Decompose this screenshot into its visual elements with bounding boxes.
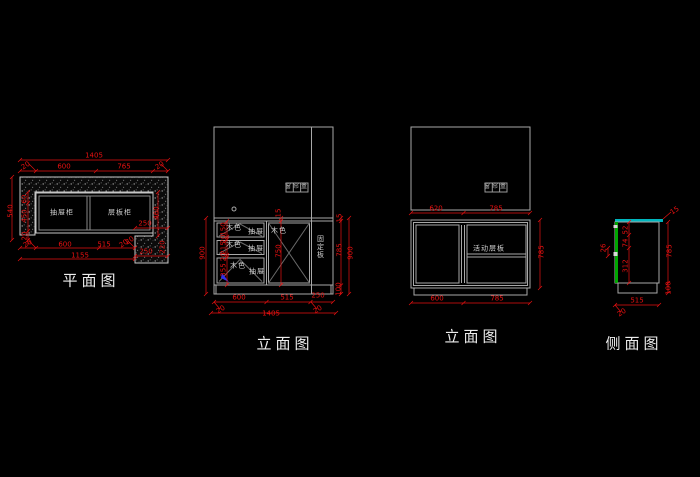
- elev1-dim-right-100: 100: [336, 282, 343, 295]
- drawing-canvas: [0, 0, 700, 477]
- elev1-dim-bot-515: 515: [280, 295, 293, 302]
- plan-label-drawer-cabinet: 抽屉柜: [50, 210, 74, 217]
- plan-dim-bot-600: 600: [58, 242, 71, 249]
- elev1-dim-355: 355: [221, 263, 228, 276]
- elev2-label-movable-shelf: 活动层板: [473, 246, 505, 253]
- elev1-label-drawer-1: 抽屉: [248, 229, 264, 236]
- elev2-dim-bot-785: 785: [490, 296, 503, 303]
- side-dim-base-100: 100: [666, 281, 673, 294]
- elev2-label-curtain-box: 窗帘盒: [484, 184, 508, 190]
- elev1-view-title: 立面图: [256, 337, 313, 352]
- elev1-label-curtain-box: 窗帘盒: [285, 184, 309, 190]
- plan-dim-600-top: 600: [57, 164, 70, 171]
- plan-dim-bot-515: 515: [97, 242, 110, 249]
- elev1-label-fixed-panel: 固定板: [317, 235, 324, 259]
- elev1-dim-bot-250: 250: [311, 293, 324, 300]
- elev1-dim-right-785: 785: [337, 243, 344, 256]
- plan-dim-bot-total: 1155: [71, 253, 89, 260]
- side-dim-312: 312: [623, 259, 630, 272]
- side-dim-left-26: 26: [601, 244, 608, 253]
- side-dim-right-785: 785: [667, 244, 674, 257]
- elev2-dim-right-785: 785: [539, 245, 546, 258]
- elev1-label-wood-1: 木色: [226, 225, 242, 232]
- plan-view-title: 平面图: [62, 274, 119, 289]
- plan-dim-right-460: 460: [154, 206, 161, 219]
- elev1-dim-bot-total: 1405: [262, 311, 280, 318]
- elev1-label-drawer-3: 抽屉: [249, 269, 265, 276]
- elev1-label-wood-3: 木色: [230, 263, 246, 270]
- plan-dim-left-450: 450: [22, 209, 29, 222]
- plan-dim-total-width: 1405: [85, 153, 103, 160]
- elev2-dim-top-620: 620: [429, 206, 442, 213]
- elev1-dim-900-right: 900: [348, 246, 355, 259]
- side-dim-bot-515: 515: [630, 298, 643, 305]
- elev1-dim-mid-15: 15: [276, 209, 283, 218]
- plan-dim-765: 765: [117, 164, 130, 171]
- elev1-dim-bot-600: 600: [232, 295, 245, 302]
- elev1-label-wood-mid: 木色: [271, 228, 287, 235]
- plan-label-shelf-cabinet: 层板柜: [108, 210, 132, 217]
- elev1-dim-right-15: 15: [337, 214, 344, 223]
- side-dim-52: 52: [623, 226, 630, 235]
- elev1-dim-20-b: 20: [221, 253, 228, 262]
- elev2-dim-bot-600: 600: [430, 296, 443, 303]
- plan-dim-notch-250-top: 250: [138, 221, 151, 228]
- plan-dim-left-60: 60: [22, 195, 29, 204]
- side-dim-74: 74: [623, 239, 630, 248]
- plan-dim-notch-250-bot: 250: [139, 249, 152, 256]
- side-view-title: 侧面图: [605, 337, 662, 352]
- elev1-dim-mid-750: 750: [276, 244, 283, 257]
- elev1-label-drawer-2: 抽屉: [248, 246, 264, 253]
- cad-drawing-viewport: 1405 20 600 765 20 540 60 450 20 460 250…: [0, 0, 700, 477]
- elev2-view-title: 立面图: [444, 330, 501, 345]
- plan-dim-depth: 540: [8, 204, 15, 217]
- elev1-dim-900-left: 900: [200, 246, 207, 259]
- elev1-label-wood-2: 木色: [226, 242, 242, 249]
- elev2-dim-top-785: 785: [489, 206, 502, 213]
- plan-dim-notch-220: 220: [160, 240, 167, 253]
